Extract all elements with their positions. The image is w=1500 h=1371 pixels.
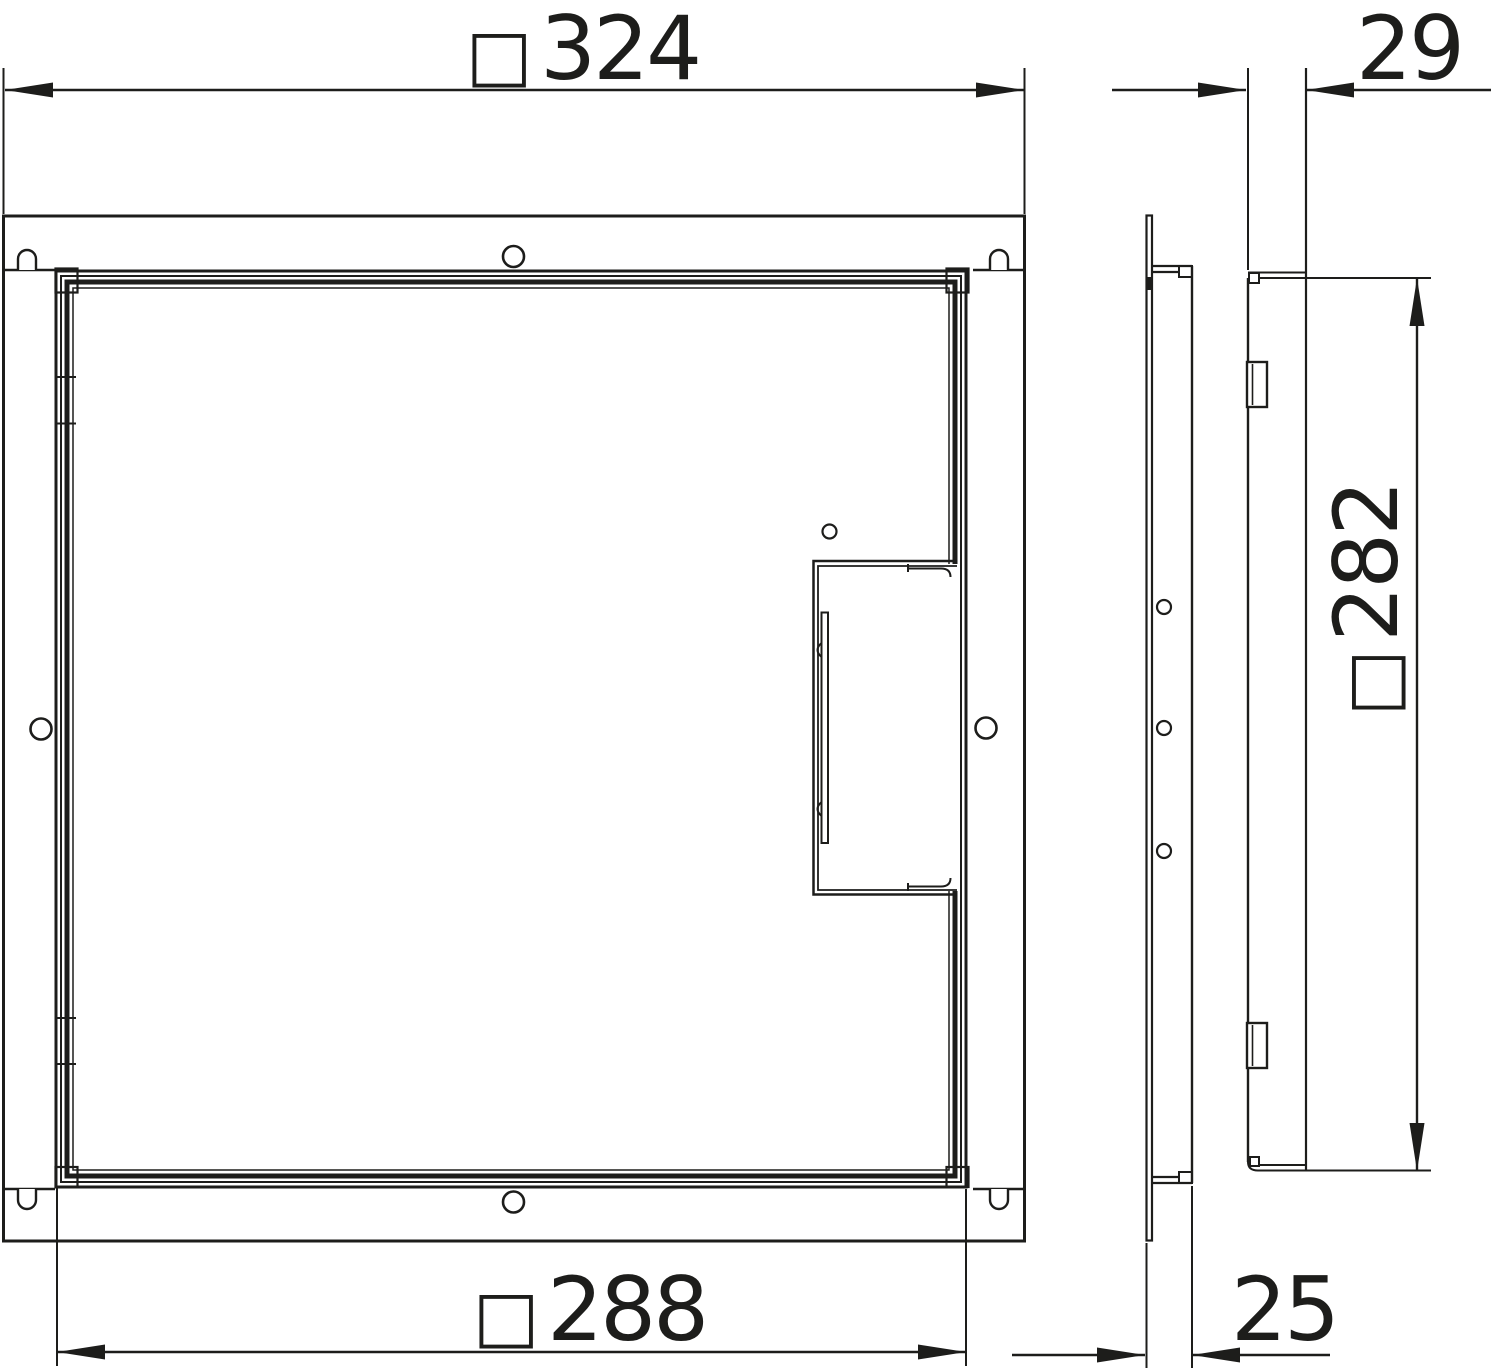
mounting-holes bbox=[31, 246, 997, 1213]
arrowhead-top bbox=[1410, 278, 1425, 326]
fixing-hole-upper bbox=[1157, 600, 1171, 614]
frame-profile-bottom-clip bbox=[1179, 1172, 1192, 1183]
dimension-frame-depth: 25 bbox=[1012, 1186, 1337, 1368]
corner-joint-slots bbox=[4, 270, 1025, 1189]
corner-keyhole-tab-top-left bbox=[18, 250, 36, 270]
dimension-total-depth: 29 bbox=[1112, 0, 1491, 270]
latch-clip-top bbox=[1247, 362, 1267, 407]
floor-box-frame-drawing: □324 29 □288 25 bbox=[0, 0, 1500, 1371]
mounting-hole-top bbox=[503, 246, 524, 267]
outer-frame-outline bbox=[4, 216, 1025, 1241]
arrowhead-left bbox=[57, 1345, 105, 1360]
fixing-hole-lower bbox=[1157, 844, 1171, 858]
corner-keyhole-tab-bottom-left bbox=[18, 1189, 36, 1209]
cassette-latch-bottom bbox=[1247, 1023, 1267, 1068]
dimension-label-frame-depth: 25 bbox=[1231, 1258, 1337, 1361]
dimension-label-total-depth: 29 bbox=[1356, 0, 1462, 100]
cover-plate-rim bbox=[56, 269, 969, 1188]
extension-lines-inner-height bbox=[1306, 278, 1431, 1171]
cassette-latch-top bbox=[1247, 362, 1267, 407]
latch-clip-bottom bbox=[1247, 1023, 1267, 1068]
mounting-hole-right bbox=[976, 718, 997, 739]
dimension-label-outer-width: □324 bbox=[466, 0, 699, 100]
cable-outlet-recess bbox=[814, 525, 958, 895]
arrowhead-bottom bbox=[1410, 1123, 1425, 1171]
dimension-label-inner-width: □288 bbox=[473, 1258, 706, 1361]
dimension-outer-width: □324 bbox=[4, 0, 1025, 214]
dimension-label-inner-height: □282 bbox=[1315, 483, 1418, 716]
arrowhead-left bbox=[5, 83, 53, 98]
technical-drawing-page: □324 29 □288 25 bbox=[0, 0, 1500, 1371]
cassette-bottom-hook bbox=[1250, 1157, 1259, 1166]
corner-keyhole-tab-top-right bbox=[990, 250, 1008, 270]
front-view bbox=[4, 216, 1025, 1241]
recess-rim-break bbox=[941, 564, 958, 891]
mounting-hole-left bbox=[31, 719, 52, 740]
corner-keyhole-tab-bottom-right bbox=[990, 1189, 1008, 1209]
cassette-top-hook bbox=[1249, 273, 1259, 283]
arrowhead-right bbox=[976, 83, 1024, 98]
recess-fixing-hole bbox=[823, 525, 837, 539]
arrowhead-left bbox=[1097, 1348, 1145, 1363]
frame-profile-plate bbox=[1147, 216, 1153, 1241]
arrowhead-right bbox=[918, 1345, 966, 1360]
side-view-cassette-profile bbox=[1247, 68, 1306, 1171]
hinged-flap bbox=[822, 613, 829, 844]
extension-lines-frame-depth bbox=[1147, 1186, 1193, 1368]
cover-plate-outline-second bbox=[61, 276, 961, 1182]
arrowhead-right bbox=[1306, 83, 1354, 98]
side-view-frame-profile bbox=[1147, 216, 1193, 1241]
dimension-inner-height: □282 bbox=[1306, 278, 1431, 1171]
frame-profile-weld-mark bbox=[1147, 277, 1153, 290]
arrowhead-left bbox=[1198, 83, 1246, 98]
frame-profile-fixing-holes bbox=[1157, 600, 1171, 858]
cover-plate-outline-outer bbox=[56, 271, 966, 1187]
recess-outline-outer bbox=[814, 561, 958, 895]
dimension-inner-width: □288 bbox=[57, 1187, 966, 1366]
recess-outline-inner bbox=[818, 566, 957, 890]
frame-profile-top-clip bbox=[1179, 266, 1192, 277]
fixing-hole-middle bbox=[1157, 721, 1171, 735]
mounting-hole-bottom bbox=[503, 1192, 524, 1213]
